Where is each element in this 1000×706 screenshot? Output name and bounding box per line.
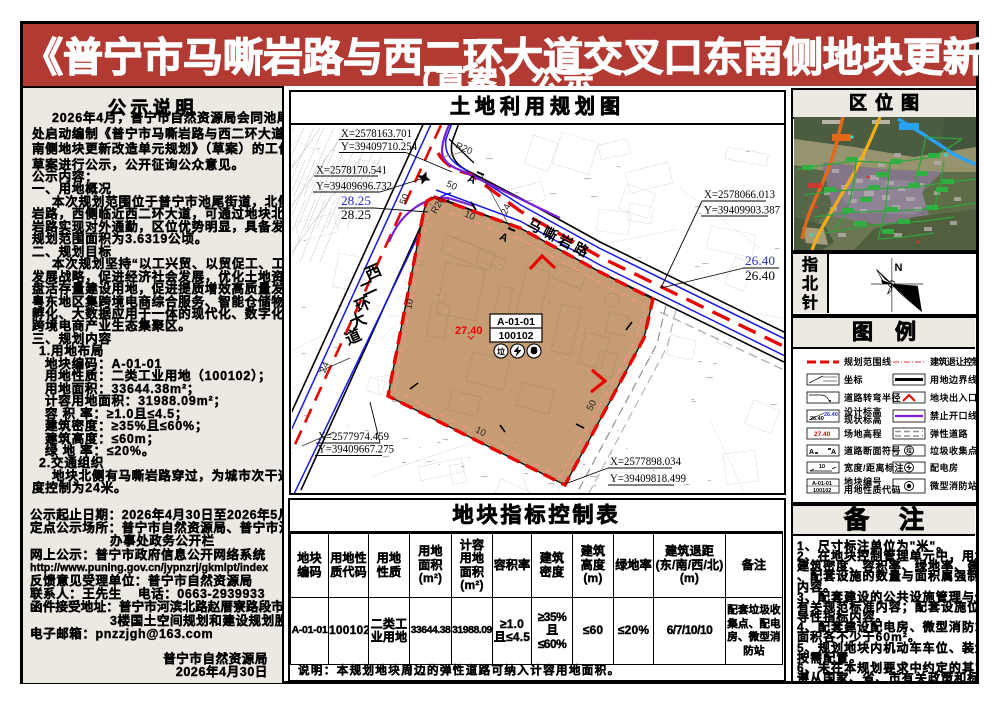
svg-text:X=2577898.034: X=2577898.034 <box>610 456 681 468</box>
svg-text:Y=39409903.387: Y=39409903.387 <box>704 205 780 217</box>
svg-text:建筑退让控制线: 建筑退让控制线 <box>930 356 976 367</box>
svg-text:Y=39409710.254: Y=39409710.254 <box>341 141 417 153</box>
svg-text:27.40: 27.40 <box>455 325 483 337</box>
svg-text:场地高程: 场地高程 <box>844 428 882 439</box>
svg-text:配电房: 配电房 <box>930 462 959 473</box>
svg-text:道路断面符号: 道路断面符号 <box>844 445 901 456</box>
svg-text:X=2578066.013: X=2578066.013 <box>704 189 775 201</box>
svg-text:用地边界线: 用地边界线 <box>929 374 976 385</box>
svg-text:Y=39409667.275: Y=39409667.275 <box>318 444 394 456</box>
svg-text:弹性道路: 弹性道路 <box>930 428 969 439</box>
svg-text:垃圾收集点: 垃圾收集点 <box>930 445 976 456</box>
svg-text:用地性质代码: 用地性质代码 <box>843 484 901 495</box>
svg-text:A-01-01: A-01-01 <box>812 481 832 487</box>
svg-text:垃: 垃 <box>497 347 505 357</box>
svg-text:Y=39409818.499: Y=39409818.499 <box>610 473 686 485</box>
svg-text:A-01-01: A-01-01 <box>497 316 535 328</box>
svg-text:R20: R20 <box>454 140 474 157</box>
svg-text:微型消防站: 微型消防站 <box>929 480 976 491</box>
svg-text:垃: 垃 <box>906 447 912 455</box>
svg-text:规划范围线: 规划范围线 <box>844 356 892 367</box>
svg-text:地块出入口: 地块出入口 <box>930 392 976 403</box>
svg-text:26.40: 26.40 <box>745 254 775 268</box>
svg-text:X=2578170.541: X=2578170.541 <box>316 165 387 177</box>
svg-text:28.25: 28.25 <box>341 208 371 222</box>
svg-text:100102: 100102 <box>498 330 533 342</box>
svg-text:X=2578163.701: X=2578163.701 <box>341 128 412 140</box>
svg-text:N: N <box>895 262 903 274</box>
svg-text:Y=39409696.732: Y=39409696.732 <box>316 181 392 193</box>
svg-text:10: 10 <box>819 464 825 470</box>
svg-text:26.40: 26.40 <box>745 269 775 283</box>
svg-text:A: A <box>831 449 836 456</box>
svg-text:27.40: 27.40 <box>814 431 831 438</box>
svg-text:道路转弯半径: 道路转弯半径 <box>844 392 901 403</box>
svg-text:宽度/距离标注: 宽度/距离标注 <box>843 462 904 473</box>
svg-text:现状标高: 现状标高 <box>844 414 882 425</box>
svg-text:A: A <box>809 449 814 456</box>
svg-text:26.40: 26.40 <box>810 416 824 422</box>
svg-text:26.40: 26.40 <box>824 412 838 418</box>
svg-text:28.25: 28.25 <box>341 194 371 208</box>
svg-text:10: 10 <box>403 298 416 311</box>
svg-text:禁止开口线: 禁止开口线 <box>930 410 976 421</box>
svg-text:100102: 100102 <box>813 488 831 494</box>
svg-text:坐标: 坐标 <box>844 374 863 385</box>
